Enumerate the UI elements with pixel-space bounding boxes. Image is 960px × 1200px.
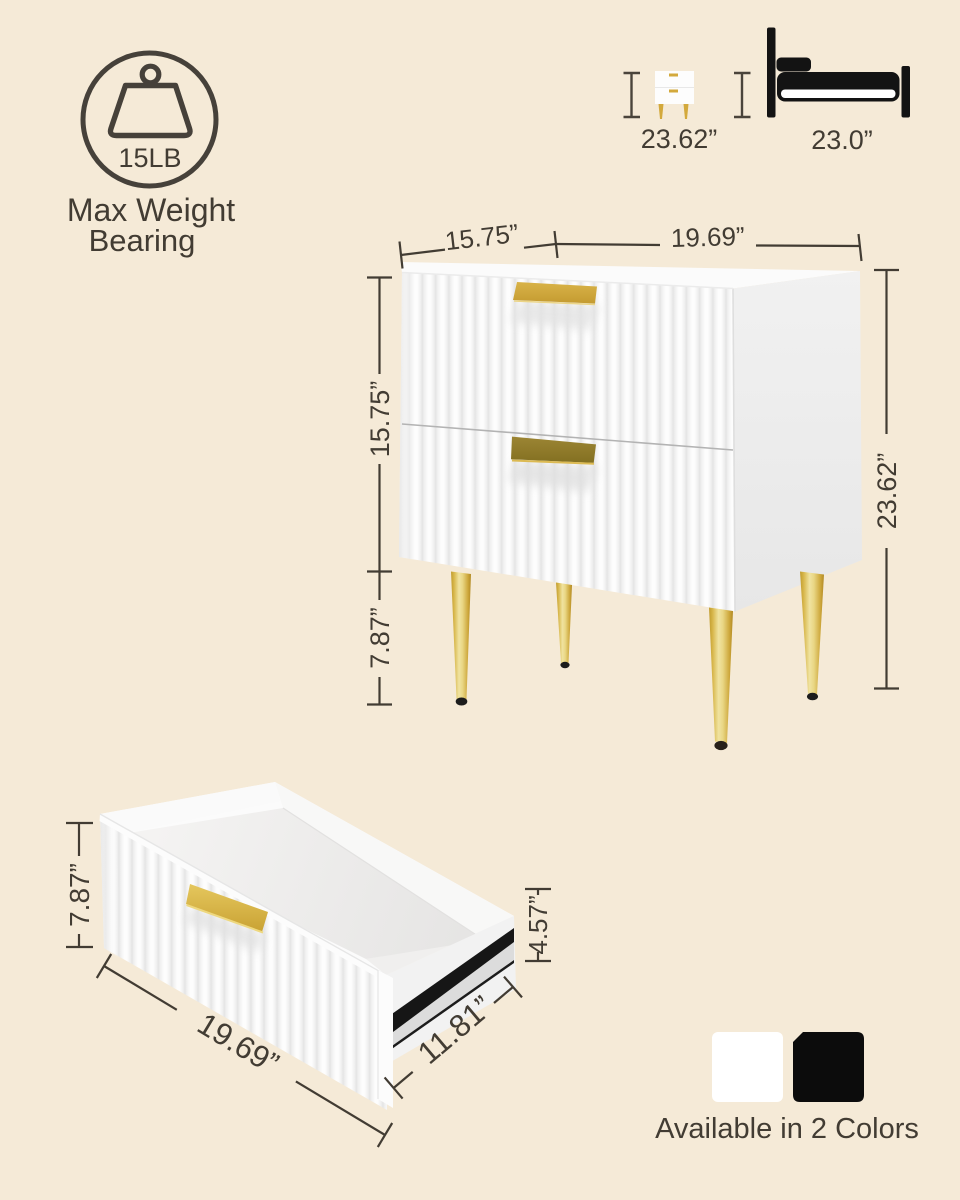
svg-text:15LB: 15LB — [118, 143, 181, 173]
svg-text:Available in 2 Colors: Available in 2 Colors — [655, 1113, 919, 1145]
svg-text:15.75”: 15.75” — [365, 381, 395, 458]
svg-text:Bearing: Bearing — [89, 223, 196, 258]
svg-text:19.69”: 19.69” — [671, 221, 745, 253]
svg-text:23.62”: 23.62” — [641, 124, 718, 154]
svg-text:4.57”: 4.57” — [523, 895, 553, 954]
svg-text:23.0”: 23.0” — [811, 125, 873, 155]
svg-text:23.62”: 23.62” — [872, 453, 902, 530]
svg-text:7.87”: 7.87” — [365, 607, 395, 669]
svg-text:7.87”: 7.87” — [64, 863, 95, 927]
